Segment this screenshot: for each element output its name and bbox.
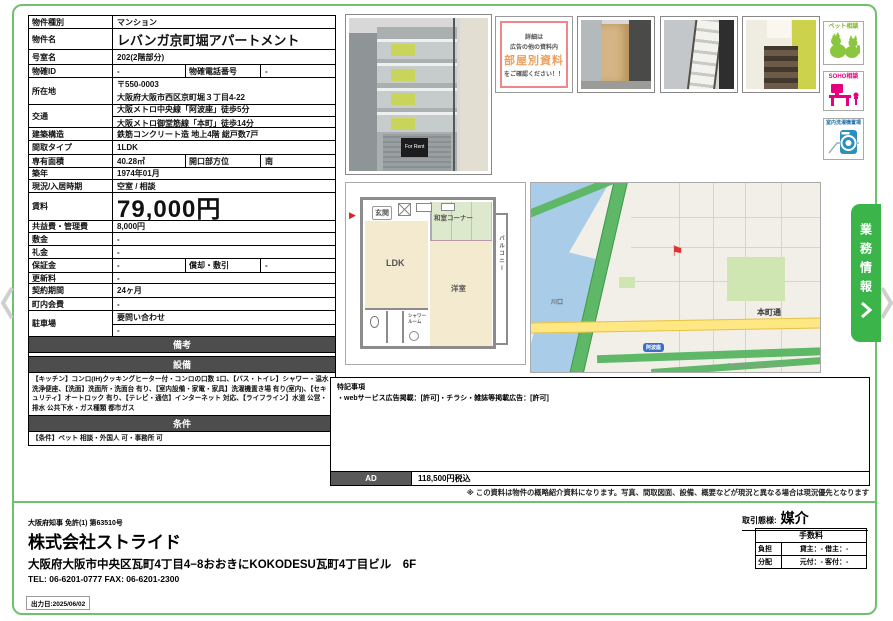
row-value: 202(2階部分) xyxy=(113,50,335,64)
row-label2: 開口部方位 xyxy=(185,155,261,167)
table-row: 専有面積 40.28㎡ 開口部方位 南 xyxy=(29,155,335,168)
table-row: 建築構造 鉄筋コンクリート造 地上4階 総戸数7戸 xyxy=(29,128,335,141)
entrance-arrow-icon: ▶ xyxy=(349,210,356,221)
photo-detail xyxy=(460,18,488,171)
row-value: マンション xyxy=(113,16,335,28)
next-page-chevron[interactable] xyxy=(880,286,893,325)
commission-row-value: 貸主：- 借主：- xyxy=(782,543,866,555)
row-value: - xyxy=(113,259,185,272)
commission-row: 分配 元付：- 客付：- xyxy=(756,556,866,568)
parking-line: - xyxy=(113,325,335,336)
row-value: 大阪メトロ中央線「阿波座」徒歩5分 大阪メトロ御堂筋線「本町」徒歩14分 xyxy=(113,105,335,127)
building-photo: For Rent xyxy=(345,14,492,175)
row-label: 現況/入居時期 xyxy=(29,180,113,192)
map-station-label: 阿波座 xyxy=(643,343,664,352)
table-row: 所在地 〒550-0003 大阪府大阪市西区京町堀３丁目4-22 xyxy=(29,78,335,105)
property-name: レバンガ京町堀アパートメント xyxy=(113,29,335,49)
row-value: 鉄筋コンクリート造 地上4階 総戸数7戸 xyxy=(113,128,335,140)
rent-amount: 79,000円 xyxy=(113,193,335,220)
table-row: 町内会費 - xyxy=(29,298,335,311)
row-label2: 物確電話番号 xyxy=(185,65,261,77)
transaction-type-value: 媒介 xyxy=(781,508,809,528)
row-label: 保証金 xyxy=(29,259,113,272)
prev-page-chevron[interactable] xyxy=(0,286,14,325)
row-label: 更新料 xyxy=(29,273,113,283)
indoor-washer-badge: 室内洗濯機置場 xyxy=(823,118,864,160)
balcony xyxy=(494,213,508,345)
for-rent-sign: For Rent xyxy=(401,138,428,157)
row-label: 賃料 xyxy=(29,193,113,220)
conditions-text: 【条件】ペット 相談・外国人 可・事務所 可 xyxy=(29,432,335,445)
row-value2: - xyxy=(261,259,335,272)
map-park xyxy=(619,277,635,288)
row-label: 交通 xyxy=(29,105,113,127)
postal-code: 〒550-0003 xyxy=(113,78,335,91)
company-address: 大阪府大阪市中央区瓦町4丁目4−8おおきにKOKODESU瓦町4丁目ビル 6F xyxy=(28,556,416,572)
pet-consult-badge: ペット相談 xyxy=(823,21,864,65)
row-value2: - xyxy=(261,65,335,77)
footer-divider xyxy=(13,501,876,503)
row-value: - xyxy=(113,233,335,245)
row-value: 40.28㎡ xyxy=(113,155,185,167)
soho-consult-badge: SOHO相談 xyxy=(823,71,864,111)
table-row: 交通 大阪メトロ中央線「阿波座」徒歩5分 大阪メトロ御堂筋線「本町」徒歩14分 xyxy=(29,105,335,128)
commission-table: 手数料 負担 貸主：- 借主：- 分配 元付：- 客付：- xyxy=(755,528,867,569)
equipment-text: 【キッチン】コンロ(IH)クッキングヒーター付・コンロの口数 1口、【バス・トイ… xyxy=(29,373,335,416)
notice-line4: をご確認ください！！ xyxy=(504,69,564,78)
company-telfax: TEL: 06-6201-0777 FAX: 06-6201-2300 xyxy=(28,574,179,584)
table-row: 号室名 202(2階部分) xyxy=(29,50,335,65)
photo-detail xyxy=(453,18,455,171)
row-label: 物件名 xyxy=(29,29,113,49)
license-number: 大阪府知事 免許(1) 第63510号 xyxy=(28,518,123,528)
table-row: 築年 1974年01月 xyxy=(29,168,335,180)
row-label: 町内会費 xyxy=(29,298,113,310)
row-value: 要問い合わせ - xyxy=(113,311,335,336)
notice-line3: 部屋別資料 xyxy=(504,52,564,68)
ad-row: AD 118,500円税込 xyxy=(331,471,869,485)
entrance-label: 玄関 xyxy=(372,206,392,220)
row-label: 契約期間 xyxy=(29,284,113,297)
row-label2: 償却・敷引 xyxy=(185,259,261,272)
parking-line: 要問い合わせ xyxy=(113,311,335,325)
row-value: - xyxy=(113,298,335,310)
row-label: 号室名 xyxy=(29,50,113,64)
soho-consult-label: SOHO相談 xyxy=(829,74,859,81)
room-material-notice-card: 詳細は 広告の他の資料内 部屋別資料 をご確認ください！！ xyxy=(495,16,573,93)
room-ldk-label: LDK xyxy=(386,258,405,268)
map-flag-marker: ⚑ xyxy=(671,243,684,260)
special-notes-line: ・webサービス広告掲載：[許可]・チラシ・雑誌等掲載広告：[許可] xyxy=(331,392,869,404)
company-name: 株式会社ストライド xyxy=(28,528,181,553)
transaction-type-label: 取引態様: xyxy=(742,515,777,526)
soho-desk-icon xyxy=(827,81,861,112)
location-map: 本町通 川口 阿波座 ⚑ Copyright© 2025 ZENRIN xyxy=(530,182,821,373)
closet-x-box xyxy=(398,203,411,216)
pet-consult-label: ペット相談 xyxy=(828,24,858,31)
table-row: 物件種別 マンション xyxy=(29,16,335,29)
table-row: 間取タイプ 1LDK xyxy=(29,141,335,155)
shower-room xyxy=(386,311,404,343)
table-row: 礼金 - xyxy=(29,246,335,259)
row-label: 専有面積 xyxy=(29,155,113,167)
shower-room-label: シャワールーム xyxy=(408,313,430,325)
special-notes-box: 特記事項 ・webサービス広告掲載：[許可]・チラシ・雑誌等掲載広告：[許可] … xyxy=(330,377,870,486)
conditions-header: 条件 xyxy=(29,416,335,432)
photo-detail: For Rent xyxy=(377,27,458,171)
washer-fixture xyxy=(409,331,419,341)
notice-line1: 詳細は xyxy=(525,32,543,41)
access-line: 大阪メトロ中央線「阿波座」徒歩5分 xyxy=(113,103,335,117)
entrance-photo xyxy=(577,16,655,93)
remarks-header: 備考 xyxy=(29,337,335,353)
row-value: - xyxy=(113,65,185,77)
ad-label: AD xyxy=(331,472,412,485)
table-row: 賃料 79,000円 xyxy=(29,193,335,221)
row-label: 間取タイプ xyxy=(29,141,113,154)
equipment-header: 設備 xyxy=(29,357,335,373)
commission-header: 手数料 xyxy=(756,529,866,543)
row-value: 8,000円 xyxy=(113,221,335,232)
row-label: 敷金 xyxy=(29,233,113,245)
table-row: 保証金 - 償却・敷引 - xyxy=(29,259,335,273)
photo-detail xyxy=(349,33,380,171)
table-row: 駐車場 要問い合わせ - xyxy=(29,311,335,337)
room-tatami-label: 和室コーナー xyxy=(434,212,473,222)
ad-value: 118,500円税込 xyxy=(412,472,869,485)
row-value: 1LDK xyxy=(113,141,335,154)
business-info-tab[interactable]: 業務情報 xyxy=(851,204,881,342)
staircase-photo xyxy=(742,16,820,93)
row-label: 所在地 xyxy=(29,78,113,104)
row-value: 1974年01月 xyxy=(113,168,335,179)
output-date: 出力日:2025/06/02 xyxy=(26,596,90,610)
floor-plan: LDK 和室コーナー 洋室 バルコニー 玄関 ▶ シャワールーム xyxy=(345,182,526,365)
toilet-fixture xyxy=(370,316,379,328)
washing-machine-icon xyxy=(827,127,861,162)
notice-line2: 広告の他の資料内 xyxy=(510,42,558,51)
commission-row-label: 負担 xyxy=(756,543,782,555)
room-western-label: 洋室 xyxy=(451,283,466,294)
row-value: - xyxy=(113,273,335,283)
row-label: 物確ID xyxy=(29,65,113,77)
row-label: 物件種別 xyxy=(29,16,113,28)
commission-row-label: 分配 xyxy=(756,556,782,568)
stove-fixture xyxy=(416,203,432,212)
commission-row: 負担 貸主：- 借主：- xyxy=(756,543,866,556)
row-label: 築年 xyxy=(29,168,113,179)
row-label: 建築構造 xyxy=(29,128,113,140)
table-row: 共益費・管理費 8,000円 xyxy=(29,221,335,233)
row-value2: 南 xyxy=(261,155,335,167)
mailbox-photo xyxy=(660,16,738,93)
row-value: - xyxy=(113,246,335,258)
table-row: 更新料 - xyxy=(29,273,335,284)
map-road-label: 本町通 xyxy=(757,307,781,318)
row-label: 礼金 xyxy=(29,246,113,258)
disclaimer-text: ※ この資料は物件の概略紹介資料になります。写真、間取図面、設備、概要などが現況… xyxy=(467,488,869,498)
table-row: 物件名 レバンガ京町堀アパートメント xyxy=(29,29,335,50)
building-photo-image: For Rent xyxy=(349,18,488,171)
table-row: 契約期間 24ヶ月 xyxy=(29,284,335,298)
row-label: 共益費・管理費 xyxy=(29,221,113,232)
map-park xyxy=(727,257,785,301)
table-row: 物確ID - 物確電話番号 - xyxy=(29,65,335,78)
property-detail-table: 物件種別 マンション 物件名 レバンガ京町堀アパートメント 号室名 202(2階… xyxy=(28,15,336,446)
business-info-label: 業務情報 xyxy=(858,223,875,299)
balcony-label: バルコニー xyxy=(497,235,505,273)
property-flyer-page: 物件種別 マンション 物件名 レバンガ京町堀アパートメント 号室名 202(2階… xyxy=(0,0,893,621)
row-value: 24ヶ月 xyxy=(113,284,335,297)
map-district-label: 川口 xyxy=(551,297,563,306)
row-label: 駐車場 xyxy=(29,311,113,336)
commission-row-value: 元付：- 客付：- xyxy=(782,556,866,568)
table-row: 敷金 - xyxy=(29,233,335,246)
sink-fixture xyxy=(441,203,455,211)
row-value: 〒550-0003 大阪府大阪市西区京町堀３丁目4-22 xyxy=(113,78,335,104)
special-notes-title: 特記事項 xyxy=(331,378,869,392)
map-copyright: Copyright© 2025 ZENRIN xyxy=(727,363,785,369)
pet-icon xyxy=(827,31,861,66)
tab-chevron-icon xyxy=(858,301,874,324)
